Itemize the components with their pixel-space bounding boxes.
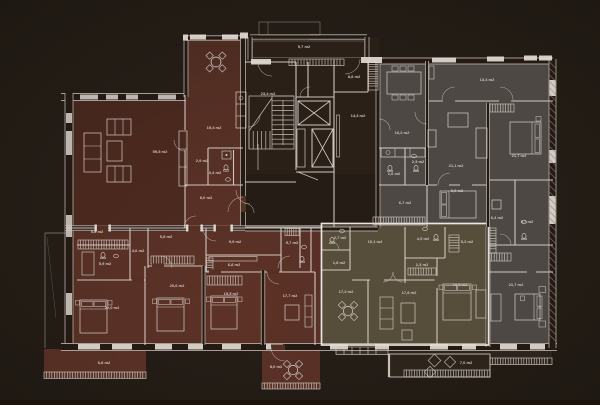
svg-text:4,9 m2: 4,9 m2: [417, 236, 430, 241]
svg-text:4,6 m2: 4,6 m2: [132, 248, 145, 253]
svg-text:20,6 m2: 20,6 m2: [170, 283, 185, 288]
svg-text:5,7 m2: 5,7 m2: [521, 219, 534, 224]
svg-text:2,3 m2: 2,3 m2: [416, 262, 429, 267]
svg-text:5,9 m2: 5,9 m2: [99, 261, 112, 266]
svg-text:5,8 m2: 5,8 m2: [160, 234, 173, 239]
svg-text:13,4 m2: 13,4 m2: [480, 77, 495, 82]
svg-text:2,7 m2: 2,7 m2: [334, 235, 347, 240]
svg-text:2,3 m2: 2,3 m2: [412, 159, 425, 164]
svg-text:16,2 m2: 16,2 m2: [395, 130, 410, 135]
svg-text:9,9 m2: 9,9 m2: [229, 239, 242, 244]
svg-text:15,5 m2: 15,5 m2: [224, 291, 239, 296]
svg-text:7,0 m2: 7,0 m2: [460, 360, 473, 365]
svg-text:10,1 m2: 10,1 m2: [368, 239, 383, 244]
svg-text:5,3 m2: 5,3 m2: [461, 239, 474, 244]
svg-text:21,7 m2: 21,7 m2: [509, 282, 524, 287]
svg-text:6,8 m2: 6,8 m2: [98, 360, 111, 365]
svg-text:6,4 m2: 6,4 m2: [491, 215, 504, 220]
svg-text:17,8 m2: 17,8 m2: [402, 290, 417, 295]
svg-text:9,9 m2: 9,9 m2: [451, 188, 464, 193]
svg-text:19,4 m2: 19,4 m2: [207, 125, 222, 130]
svg-text:21,7 m2: 21,7 m2: [512, 153, 527, 158]
svg-text:19,8 m2: 19,8 m2: [453, 282, 468, 287]
svg-text:6,8 m2: 6,8 m2: [228, 262, 241, 267]
svg-text:21,1 m2: 21,1 m2: [449, 163, 464, 168]
svg-text:23,4 m2: 23,4 m2: [261, 91, 276, 96]
svg-text:5,7 m2: 5,7 m2: [286, 240, 299, 245]
svg-text:1,8 m2: 1,8 m2: [333, 260, 346, 265]
svg-text:5,8 m2: 5,8 m2: [91, 229, 104, 234]
svg-text:17,3 m2: 17,3 m2: [339, 289, 354, 294]
svg-text:8,8 m2: 8,8 m2: [348, 74, 361, 79]
svg-text:2,9 m2: 2,9 m2: [196, 158, 209, 163]
svg-text:14,3 m2: 14,3 m2: [351, 113, 366, 118]
svg-text:8,0 m2: 8,0 m2: [200, 195, 213, 200]
svg-text:8,0 m2: 8,0 m2: [270, 364, 283, 369]
svg-text:3,4 m2: 3,4 m2: [209, 170, 222, 175]
svg-text:59,5 m2: 59,5 m2: [153, 149, 168, 154]
svg-text:1,6 m2: 1,6 m2: [388, 171, 401, 176]
svg-text:17,7 m2: 17,7 m2: [283, 293, 298, 298]
svg-text:20,0 m2: 20,0 m2: [105, 305, 120, 310]
svg-text:6,7 m2: 6,7 m2: [399, 200, 412, 205]
svg-text:9,7 m2: 9,7 m2: [298, 44, 311, 49]
